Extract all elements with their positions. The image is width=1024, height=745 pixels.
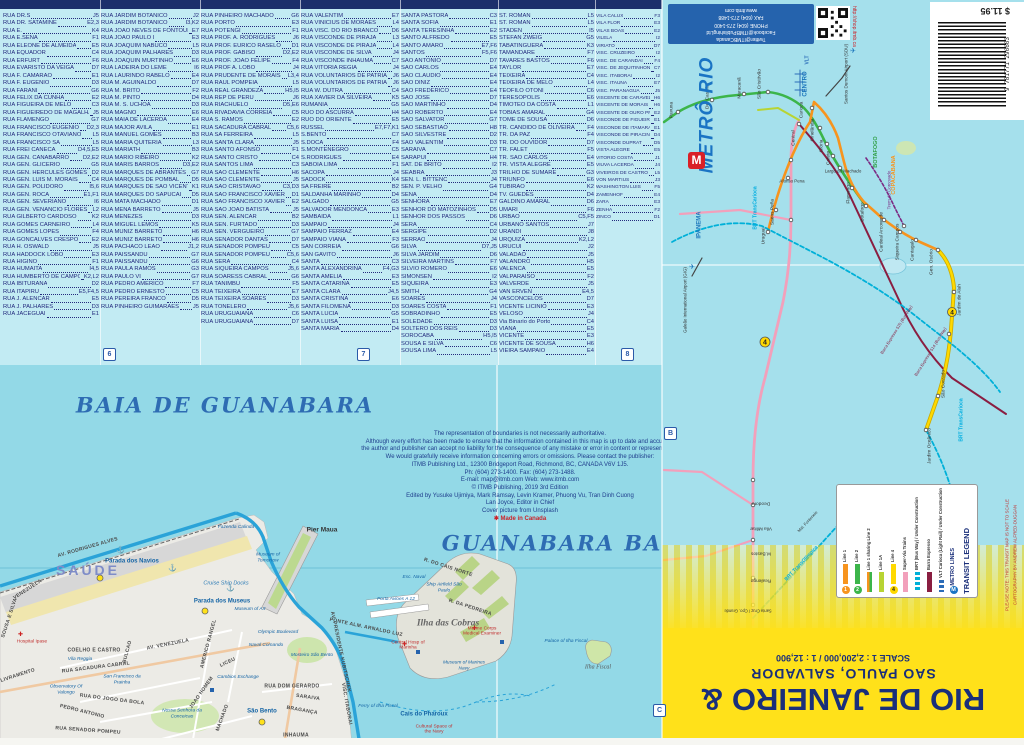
- ilha-fiscal: [586, 640, 612, 664]
- index-entry: SAO JOSED7: [401, 95, 497, 102]
- index-entry: RUA FRANCISCO SAL5: [3, 140, 99, 147]
- index-entry: RUA VISC. DO RIO BRANCOD6: [301, 28, 399, 35]
- metro-label: Catete: [826, 151, 831, 165]
- legend-item: Super-Via Trains: [900, 488, 911, 594]
- metro-label: Santos Dumont Airport (SDU): [843, 44, 848, 104]
- index-entry: RUA MARIO RIBEIROK2: [101, 155, 199, 162]
- index-entry: TV. GUEDESD4: [499, 192, 594, 199]
- legend-line-badge: 2: [854, 586, 862, 594]
- index-entry: RUA VISCONDE DE SILVAJ4: [301, 50, 399, 57]
- index-entry: SAN GAVITOJ6: [301, 252, 399, 259]
- metro-label: BRT TransCarioca: [753, 186, 759, 229]
- index-entry: SANTA LUCIAG5: [301, 311, 399, 318]
- index-entry: VIUVA LACERDAJ4: [596, 162, 660, 169]
- legend-swatch: [915, 572, 920, 592]
- index-entry: SANTA ALEXANDRINAF4,G3: [301, 266, 399, 273]
- index-entry: RUA PACHACO LEAOJ1,2: [101, 244, 199, 251]
- metro-label: Saens Peña: [770, 199, 775, 225]
- index-entry: VALADAOJ5: [499, 252, 594, 259]
- map-label: Mosteiro São Bento: [289, 653, 335, 659]
- index-entry: RUO DO ORIENTEE5: [301, 117, 399, 124]
- line1: [768, 102, 938, 250]
- metro-label: Glória: [819, 140, 824, 153]
- metro-label: Central: [791, 130, 796, 145]
- index-entry: RUA SAO FRANCISCO XAVIERD1: [201, 192, 299, 199]
- index-entry: URBANO SANTOSJ7: [499, 222, 594, 229]
- barcode-bars: [938, 22, 1006, 108]
- index-entry: RUA POTENGIF1: [201, 28, 299, 35]
- attribution-line: The representation of boundaries is not …: [352, 431, 688, 439]
- map-label: Pier Maua: [307, 526, 338, 533]
- metro-label: CENTRO: [803, 71, 810, 96]
- index-entry: VISC. PARANAGUAJ5: [596, 88, 660, 95]
- metro-label: São Cristóvão: [757, 69, 762, 99]
- index-entry: RUA MARQUES DE SAO VICENTEK1: [101, 184, 199, 191]
- index-entry: RUA M. S. UCHOAD3: [101, 102, 199, 109]
- index-entry: RUA SANTOS LIMAC3: [201, 162, 299, 169]
- index-entry: RUA EVARISTO DA VEIGAD7: [3, 65, 99, 72]
- legend-subtitle-column: METRO LINES M: [948, 488, 959, 594]
- index-entry: RUA M. PINTOD4: [101, 95, 199, 102]
- index-entry: RUA MAGNOE6: [101, 110, 199, 117]
- index-entry: SAO MARTINHOD4: [401, 102, 497, 109]
- index-entry: RUA VOLUNTARIOS DE PATRIAJ6: [301, 80, 399, 87]
- index-entry: SALVADOR MENDONCAE3: [301, 207, 399, 214]
- index-entry: RUA PROF A. LOBOJ4: [201, 65, 299, 72]
- index-entry: RUA J. ALENCARE5: [3, 296, 99, 303]
- index-entry: RUA SA FERREIRAL5: [201, 132, 299, 139]
- index-entry: RUA ITAPIRUE5,F4,5: [3, 289, 99, 296]
- index-entry: SANTO ALFREDOE5: [401, 35, 497, 42]
- index-entry: SANTA PASTORAC3: [401, 13, 497, 20]
- legend-item: BRT (Bus Way) / Under Construction: [912, 488, 923, 594]
- index-entry: RUA GONCALVES CRESPOE2: [3, 237, 99, 244]
- legend-swatch: [891, 564, 896, 584]
- index-entry: RUA SOARESS CABRALG6: [201, 274, 299, 281]
- index-entry: SACOPAJ4: [301, 170, 399, 177]
- index-entry: RUA SANTO AFONSOF1: [201, 147, 299, 154]
- metro-label: IPANEMA: [697, 211, 704, 238]
- index-entry: VICENTE DE SOUSAH6: [499, 341, 594, 348]
- index-entry: RUA F. CAMARAOE1: [3, 73, 99, 80]
- index-entry: UMARIF6: [499, 207, 594, 214]
- index-entry: SILVIO ROMEROE6: [401, 266, 497, 273]
- index-entry: VICENTEE3: [499, 333, 594, 340]
- index-entry: RUA FARANIG6: [3, 88, 99, 95]
- index-entry: RUA SAO CRISTAVAOC3,D3: [201, 184, 299, 191]
- index-entry: SIMONSENI2: [401, 274, 497, 281]
- index-entry: SILVAD7,J5: [401, 244, 497, 251]
- contact-line: Facebook@ITMBPublishingLtd: [668, 28, 814, 35]
- index-entry: VISCENTE DE CARAVELASH6: [596, 95, 660, 102]
- index-entry: SAO SILVESTRED2: [401, 132, 497, 139]
- index-entry: RUA PROF. JOAO FELIPEF4: [201, 58, 299, 65]
- index-entry: RUA GILBERTO CARDOSOK2: [3, 214, 99, 221]
- index-entry: VITORIO COSTAJ1: [596, 155, 660, 162]
- index-entry: VELOSOJ4: [499, 311, 594, 318]
- legend-item: Line 1A: [876, 488, 887, 594]
- index-entry: RUA FREI CANECAD4,5,E5: [3, 147, 99, 154]
- index-entry: RUA SANTA CLARAJ5: [201, 140, 299, 147]
- index-entry: RUA LAURINDO RABELOE4: [101, 73, 199, 80]
- index-entry: RUA SEN. ALENCARB2: [201, 214, 299, 221]
- index-entry: VISC. DE JEQUITINHONHAC7: [596, 65, 660, 72]
- index-entry: SANTA CRISTINAE6: [301, 296, 399, 303]
- index-entry: S.RODRIGUESE4: [301, 155, 399, 162]
- index-entry: RUA RIVADAVIA CORREIAC5: [201, 110, 299, 117]
- index-entry: RUA RIACHUELOD5,E6: [201, 102, 299, 109]
- metro-label: Gen. Osório: [929, 249, 934, 275]
- legend-item-label: Line 2: [855, 488, 859, 562]
- index-entry: RUA E.K4: [3, 28, 99, 35]
- index-entry: RUA TEIXEIRA SOARESD3: [201, 296, 299, 303]
- svg-text:⚓: ⚓: [116, 545, 125, 554]
- index-entry: TR. CANDIDO DE OLIVEIRAF4: [499, 125, 594, 132]
- index-entry: RUA SERAC4: [201, 259, 299, 266]
- index-entry: RUA REAL GRANDEZAH5,I5: [201, 88, 299, 95]
- index-entry: RUA S. RAMOSE2: [201, 117, 299, 124]
- index-entry: RUA PEREIRA FRANCOD5: [101, 296, 199, 303]
- line1a: [758, 108, 799, 120]
- index-entry: URQUIZAK2,L2: [499, 237, 594, 244]
- map-label: Ilha Fiscal: [585, 665, 611, 672]
- index-entry: SAMPAIO VIANAF3: [301, 237, 399, 244]
- index-entry: RUA JOAO NEVES DE FONTOURAE7: [101, 28, 199, 35]
- index-entry: SOBRADINHOE5: [401, 311, 497, 318]
- page-bottom-edge: [0, 738, 1024, 745]
- index-entry: RUSSELE7,F7,K1: [301, 125, 399, 132]
- index-entry: SOUSA LIMAL5: [401, 348, 497, 355]
- index-entry: TIMOTEO DA COSTAL1: [499, 102, 594, 109]
- fold-marker: C: [653, 704, 666, 717]
- index-entry: RUA FELIX DA CUNHAE2: [3, 95, 99, 102]
- index-entry: SERRAOJ4: [401, 237, 497, 244]
- index-entry: SAO SALVATORG7: [401, 117, 497, 124]
- index-entry: RUA FLAMENGOG7: [3, 117, 99, 124]
- contact-line: PHONE (604) 273-1400: [668, 20, 814, 27]
- metro-label: ✈: [850, 48, 856, 56]
- index-entry: RUA GEN. HERCULES GOMESD2: [3, 170, 99, 177]
- index-entry: SANTA AMELIAE3: [301, 274, 399, 281]
- index-entry: RUA MARIATHB3: [101, 147, 199, 154]
- index-entry: VASCONCELOSD7: [499, 296, 594, 303]
- index-entry: SANTO AMAROE7,F6: [401, 43, 497, 50]
- metro-label: Uruguai: [761, 228, 766, 245]
- map-label: Palace of Ilha Fiscal: [543, 639, 589, 645]
- index-entry: RUA MAIA DE LACERDAE4: [101, 117, 199, 124]
- index-entry: WASHINGTON LUISF5: [596, 184, 660, 191]
- index-column: ST. ROMANL5ST. ROMANL5STADENI5STEFAN ZWE…: [499, 13, 594, 362]
- fold-marker: B: [664, 427, 677, 440]
- index-entry: SANTA CATARINAE5: [301, 281, 399, 288]
- index-entry: RUA H. OSWALDJ5: [3, 244, 99, 251]
- index-entry: VILA CALUXF3: [596, 13, 660, 20]
- publisher-attribution: The representation of boundaries is not …: [352, 431, 688, 523]
- map-label: Vila Reggia: [57, 657, 103, 663]
- index-entry: TEIXEIRAC4: [499, 73, 594, 80]
- index-entry: RUA VALENTIME7: [301, 13, 399, 20]
- index-entry: RUA VISCONDE INHAUMAC7: [301, 58, 399, 65]
- index-entry: VISC. ITABORAII2: [596, 73, 660, 80]
- index-entry: SAO DINIZE4: [401, 80, 497, 87]
- legend-item: Line 1 sharing Line 2: [864, 488, 875, 594]
- index-column: SANTA PASTORAC3SANTA SOFIAE1SANTA TERESI…: [401, 13, 497, 362]
- cover-title: RIO DE JANEIRO &: [701, 683, 985, 716]
- index-entry: RUA HIGINOF1: [3, 259, 99, 266]
- index-entry: TR. DA PAZF4: [499, 132, 594, 139]
- metro-label: Jardim Oceânico: [927, 428, 932, 464]
- index-entry: VIEIRA SAMPAIOE4: [499, 348, 594, 355]
- index-entry: RUA J. PALHARESD3: [3, 304, 99, 311]
- index-entry: RUA MARIA QUITERIAL3: [101, 140, 199, 147]
- legend-title: TRANSIT LEGEND: [963, 528, 971, 594]
- index-entry: RUA MATA MACHADOD1: [101, 199, 199, 206]
- index-entry: RUA FRANCISCO EUGENIOD2,3: [3, 125, 99, 132]
- legend-item-label: Line 1A: [879, 488, 883, 570]
- index-entry: RUA PAISSANDUG7: [101, 252, 199, 259]
- index-entry: RUA M. AGUINALDOD7: [101, 80, 199, 87]
- index-entry: RUO DO ASCURRAH4: [301, 110, 399, 117]
- index-entry: RUA SANTO CRISTOC4: [201, 155, 299, 162]
- metro-label: VLT: [805, 55, 811, 64]
- map-label: Olympic Boulevard: [255, 630, 301, 636]
- index-entry: RUA SACADURA CABRALC5,6: [201, 125, 299, 132]
- index-entry: VISCONDE DUPRATD5: [596, 140, 660, 147]
- metro-label: Pavuna: [669, 102, 674, 118]
- index-entry: S.DOCAF4: [301, 140, 399, 147]
- index-entry: RUA JARDIM BOTANICOI3,K2: [101, 20, 199, 27]
- legend-item-label: Line 4: [891, 488, 895, 562]
- index-entry: SAO CLAUDIOE4: [401, 73, 497, 80]
- legend-swatch: [843, 564, 848, 584]
- index-entry: SAT. DE BRITOI2: [401, 162, 497, 169]
- index-column: RUA JARDIM BOTANICOJ2RUA JARDIM BOTANICO…: [101, 13, 199, 362]
- index-entry: TAMANDAREF7: [499, 50, 594, 57]
- index-entry: VISC. ITAUNAE7: [596, 80, 660, 87]
- qr-code: [816, 6, 850, 40]
- index-entry: RUA TEIXEIRAE7: [201, 289, 299, 296]
- legend-line-badge: 4: [890, 586, 898, 594]
- index-entry: TEOFILO OTONIC6: [499, 88, 594, 95]
- map-label: Parada dos Museus: [194, 599, 250, 606]
- index-entry: RUA GEN. LUIS M. MORAISC4: [3, 177, 99, 184]
- index-entry: RUA GEN. CANABARROD2,E2: [3, 155, 99, 162]
- index-entry: SEN. L. BITTENCJ4: [401, 177, 497, 184]
- map-label: Nossa Senhora da Conceicao: [159, 708, 205, 719]
- legend-item-label: BRT (Bus Way) / Under Construction: [915, 488, 919, 570]
- index-entry: SANTA LUISAE1: [301, 319, 399, 326]
- index-entry: RUA MAJOR AVILAE1: [101, 125, 199, 132]
- map-label: Cais do Pharoux: [400, 712, 447, 719]
- svg-text:4: 4: [950, 310, 954, 317]
- index-entry: RUA MUNIZ BARRETOH6: [101, 237, 199, 244]
- index-entry: RUA PAULO VIG7: [101, 274, 199, 281]
- index-entry: SANTA TERESINHAE2: [401, 28, 497, 35]
- metro-label: Siqueira Campos: [895, 224, 900, 261]
- index-entry: SAO CARLOSE4: [401, 65, 497, 72]
- index-entry: RUA MARIS BARROSD3,E2: [101, 162, 199, 169]
- index-entry: TRILHO DE SUMAREG3: [499, 170, 594, 177]
- legend-item: Line 22: [852, 488, 863, 594]
- attribution-line: © ITMB Publishing, 2019 3rd Edition: [352, 485, 688, 493]
- index-entry: RUA FRANCISCO OTAVIANOL5: [3, 132, 99, 139]
- index-entry: URUCUIJ2: [499, 244, 594, 251]
- legend-item: Line 44: [888, 488, 899, 594]
- index-entry: SAO ROBERTOE4: [401, 110, 497, 117]
- index-entry: RUA IBITURANAD2: [3, 281, 99, 288]
- index-entry: S.MONTENEGROC5: [301, 147, 399, 154]
- guanabara-bay-label: GUANABARA BAY: [442, 531, 678, 556]
- index-entry: RUA VINICIUS DE MORAESL4: [301, 20, 399, 27]
- index-entry: VISCENTE DE OURO PRETOE2: [596, 110, 660, 117]
- made-in-canada: ✱ Made in Canada: [352, 516, 688, 524]
- index-entry: TR. SAO CARLOSE4: [499, 155, 594, 162]
- index-entry: S.BENTOC7: [301, 132, 399, 139]
- index-entry: SILVA JARDIMD6: [401, 252, 497, 259]
- index-entry: SOARESJ4: [401, 296, 497, 303]
- metro-label: ✈: [689, 264, 695, 272]
- index-entry: SAMPAIOJ4: [301, 222, 399, 229]
- supervia-branch: [664, 470, 753, 505]
- map-label: COELHO E CASTRO: [67, 649, 120, 654]
- index-entry: RUA JOAO PAULO IE3: [101, 35, 199, 42]
- index-entry: SA FREIREB2: [301, 184, 399, 191]
- metro-label: Flamengo: [846, 182, 851, 203]
- index-entry: TAYLORE7: [499, 65, 594, 72]
- attribution-line: the author and publisher can accept no l…: [352, 446, 688, 454]
- attribution-line: We would gratefully receive information …: [352, 454, 688, 462]
- index-entry: RUA HUMAITAI4,5: [3, 266, 99, 273]
- line4-badges: 4 4: [760, 308, 957, 348]
- index-entry: RUA SAO JOAO BATISTAJ5: [201, 207, 299, 214]
- index-entry: RUA SAO FRANCISCO XAVIERE2: [201, 199, 299, 206]
- index-entry: RUA VITORIA REGIAJ4: [301, 65, 399, 72]
- metro-label: Deodoro: [752, 500, 770, 505]
- index-entry: SAO FREDERICOE4: [401, 88, 497, 95]
- index-entry: SAO SEBASTIAOH8: [401, 125, 497, 132]
- map-label: Naval Comando: [243, 643, 289, 649]
- metro-label: Largo do Machado: [825, 170, 862, 175]
- legend-swatch: [879, 572, 884, 592]
- index-entry: SADOCKK4: [301, 177, 399, 184]
- metro-label: Cantagalo: [910, 239, 915, 261]
- fold-marker: 8: [621, 348, 634, 361]
- map-label: Ferry of Ilha Fiscal: [355, 704, 401, 710]
- index-entry: RUA MENA BARRETOJ5: [101, 207, 199, 214]
- index-entry: SMITHG4: [401, 289, 497, 296]
- metro-m-icon: M: [688, 152, 705, 169]
- index-entry: RUA GEN. SEVERIANOI6: [3, 199, 99, 206]
- transit-legend: TRANSIT LEGEND METRO LINES M Line 11Line…: [836, 484, 978, 598]
- legend-swatch: [939, 580, 944, 592]
- index-entry: TOBIAS AMARALG4: [499, 110, 594, 117]
- index-entry: VON MARTIUSJ3: [596, 177, 660, 184]
- legend-item-label: Barra Expresso: [927, 488, 931, 570]
- fold-marker: 6: [103, 348, 116, 361]
- index-entry: RUA FIGUEIRA DE MELOC3: [3, 102, 99, 109]
- map-label: Cruise Ship Docks: [203, 581, 248, 587]
- index-entry: RUA MUNIZ BARRETOH6: [101, 229, 199, 236]
- index-entry: RUA DR.SJ5: [3, 13, 99, 20]
- index-column: VILA CALUXF3VILA FLORE3VILAS BOASE2VILEL…: [596, 13, 660, 362]
- legend-item: VLT Carioca (Light Rail) / Under Constru…: [936, 488, 947, 594]
- index-entry: ZENHAF2: [596, 207, 660, 214]
- index-entry: RUA PINHEIRO GUIMARAESJ5: [101, 304, 199, 311]
- index-entry: RUA SENADOR POMPEUC5,6: [201, 252, 299, 259]
- index-entry: RUMANIAG5: [301, 102, 399, 109]
- index-entry: VICENTE LICINIOE3: [499, 304, 594, 311]
- index-entry: RUA F. EUGENIOD3: [3, 80, 99, 87]
- svg-text:4: 4: [763, 340, 767, 347]
- metro-label: Trem do Corcovado: [888, 171, 893, 210]
- map-label: Central Hosp of Marinha: [387, 641, 429, 652]
- index-entry: RUA PRUDENTE DE MORAISL3,4: [201, 73, 299, 80]
- index-entry: SARAIVAC7: [401, 147, 497, 154]
- index-entry: RUA SIQUEIRA CAMPOSJ5,6: [201, 266, 299, 273]
- index-entry: RUA VISCONDE DE PIRAJAL4: [301, 43, 399, 50]
- legend-item-label: Line 1: [843, 488, 847, 562]
- index-entry: RUA MANUEL GOMESB3: [101, 132, 199, 139]
- publisher-contact-band: Twitter@ITMBCanadaFacebook@ITMBPublishin…: [668, 4, 814, 44]
- map-label: Fazenda Calinda: [213, 525, 259, 531]
- map-label: Ship Airfield São Paulo: [421, 582, 467, 593]
- index-entry: SEABRAJ3: [401, 170, 497, 177]
- legend-swatch: [903, 572, 908, 592]
- index-entry: RUA GEN. POLIDOROI5,6: [3, 184, 99, 191]
- legend-line-badge: 1: [842, 586, 850, 594]
- metro-label: Botafogo: [860, 202, 865, 221]
- index-entry: RUA GOMES CARNEIROL4: [3, 222, 99, 229]
- svg-text:✚: ✚: [18, 631, 23, 638]
- index-entry: SAMPAIO FERRAZE4: [301, 229, 399, 236]
- index-entry: RUA REP DE PERUJ6: [201, 95, 299, 102]
- index-entry: RUA PORTOE3: [201, 20, 299, 27]
- map-label: Museum of Marines Navy: [441, 660, 487, 671]
- index-entry: TEIXEIRA DE MELOL4: [499, 80, 594, 87]
- index-entry: RUA E.SENAF1: [3, 35, 99, 42]
- index-entry: VALENCAE5: [499, 266, 594, 273]
- metro-label: Vila Militar: [750, 525, 772, 530]
- index-entry: SENHOR DOS PASSOSD6: [401, 214, 497, 221]
- index-entry: RUA LADEIRA DO LEMEI6: [101, 65, 199, 72]
- index-entry: RUA SENADOR DANTASD7: [201, 237, 299, 244]
- map-label: Parada dos Navios: [105, 559, 159, 566]
- legend-item-label: Line 1 sharing Line 2: [867, 488, 871, 570]
- barcode-number: 9 781771 296663: [1005, 37, 1011, 91]
- metro-label: Jardim de Alah: [957, 284, 962, 316]
- metro-label: BOTAFOGO: [873, 136, 879, 167]
- index-entry: RUA HADDOCK LOBOE3: [3, 252, 99, 259]
- index-entry: SERGIPED2: [401, 229, 497, 236]
- index-entry: VIANAE5: [499, 326, 594, 333]
- qr-pattern: [818, 8, 848, 38]
- index-entry: STADENI5: [499, 28, 594, 35]
- index-entry: RUA SAO CLEMENTEH6: [201, 170, 299, 177]
- index-entry: TERESOPOLISE6: [499, 95, 594, 102]
- index-entry: VISCONDE DE PIRACINUNGAD4: [596, 132, 660, 139]
- index-entry: SAO ANTONIOD7: [401, 58, 497, 65]
- index-entry: RUA MENEZESD3: [101, 214, 199, 221]
- attribution-line: Ph: (604) 273-1400. Fax: (604) 273-1488.: [352, 470, 688, 478]
- index-entry: VAN ERVENE4,5: [499, 289, 594, 296]
- index-entry: RUA FIGUEIREDO DE MAGALHAESJ5: [3, 110, 99, 117]
- index-entry: STEFAN ZWEIGG5: [499, 35, 594, 42]
- price: $ 11.95: [940, 6, 1010, 15]
- metro-icon: M: [950, 586, 958, 594]
- map-label: Porta Avioes A 12: [373, 597, 419, 603]
- index-entry: RUA SENADOR POMPEUC5: [201, 244, 299, 251]
- transit-map-note: PLEASE NOTE: THIS TRANSIT MAP IS NOT TO …: [1006, 499, 1011, 611]
